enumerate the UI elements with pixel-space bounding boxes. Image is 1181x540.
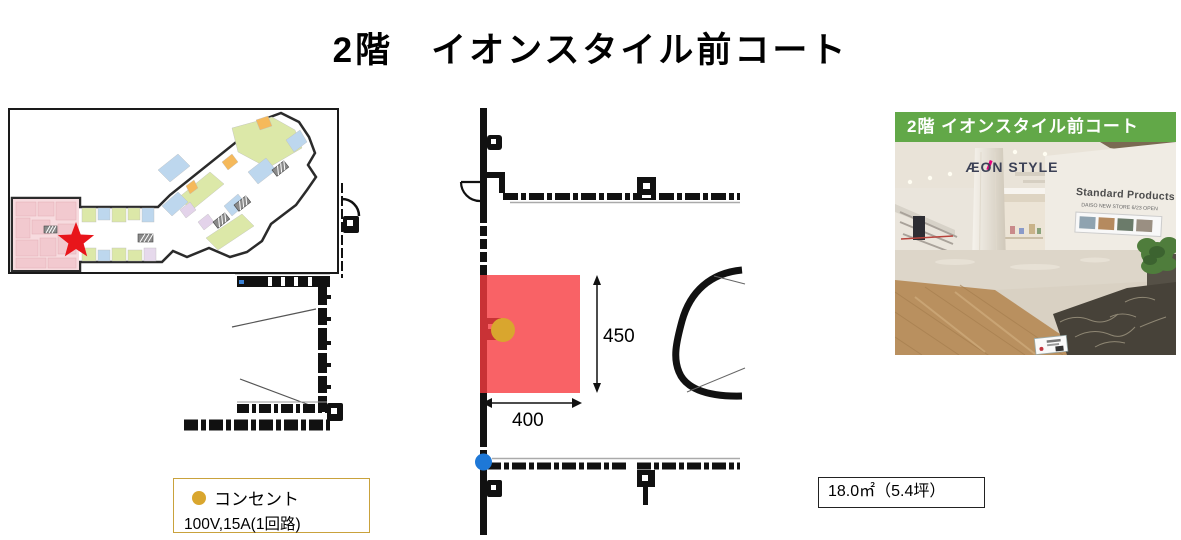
store-interior (1003, 194, 1045, 252)
area-note: 18.0㎡（5.4坪） (818, 477, 985, 508)
escalator-icon (138, 234, 153, 242)
escalator-icon (44, 226, 57, 233)
overview-map (8, 108, 339, 274)
aeon-style-sign: ÆON STYLE (965, 159, 1058, 175)
page-title: 2階 イオンスタイル前コート (0, 22, 1181, 73)
wall-jog (487, 172, 505, 193)
cad-fragment-door (334, 183, 368, 303)
digital-signage-screen (913, 216, 925, 240)
wall-horizontal-bottom (487, 459, 740, 506)
anchor-store-pink-zone (13, 199, 79, 270)
wall-column-top (487, 135, 502, 150)
outlet-legend-spec: 100V,15A(1回路) (184, 512, 369, 534)
wall-column-bottom (487, 480, 502, 497)
photo-block: 2階 イオンスタイル前コート (895, 112, 1176, 355)
outlet-marker (491, 318, 515, 342)
outlet-legend-label: コンセント (214, 485, 299, 510)
floor-sign (1034, 335, 1067, 354)
detail-floor-plan: 450 400 (440, 95, 760, 540)
dim-width-label: 400 (512, 410, 544, 431)
dimension-width: 400 (482, 398, 582, 431)
dimension-height: 450 (593, 275, 635, 393)
storefront-photo: Standard Products DAISO NEW STORE 6/23 O… (895, 142, 1176, 355)
overview-map-svg (10, 110, 337, 272)
outlet-dot-icon (192, 491, 206, 505)
court-curve (676, 270, 745, 396)
blue-marker (475, 454, 492, 471)
photo-header: 2階 イオンスタイル前コート (895, 112, 1176, 142)
page: 2階 イオンスタイル前コート (0, 0, 1181, 540)
outlet-legend: コンセント 100V,15A(1回路) (173, 478, 370, 533)
wall-horizontal-top (503, 177, 740, 203)
door-swing (461, 182, 480, 201)
dim-height-label: 450 (603, 326, 635, 347)
